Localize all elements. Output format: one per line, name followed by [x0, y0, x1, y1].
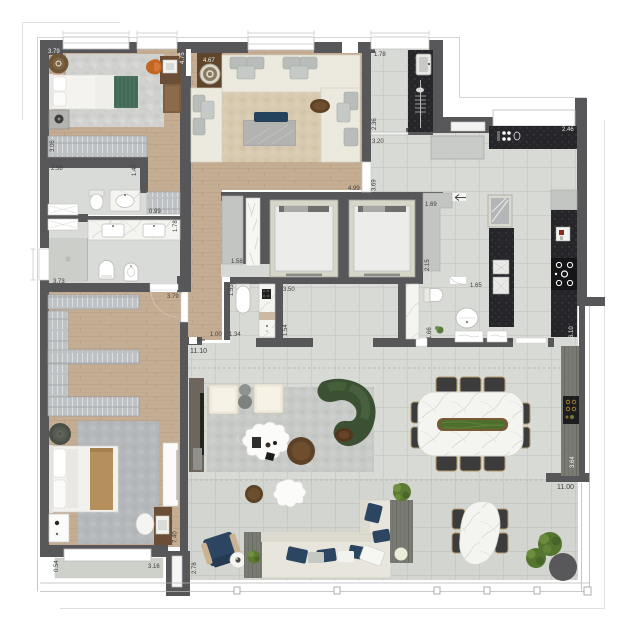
svg-text:1.54: 1.54: [283, 324, 289, 336]
svg-text:1.66: 1.66: [427, 327, 433, 339]
svg-text:3.79: 3.79: [48, 49, 60, 55]
svg-text:1.65: 1.65: [470, 283, 482, 289]
svg-text:3.73: 3.73: [53, 279, 65, 285]
svg-text:3.20: 3.20: [372, 139, 384, 145]
svg-text:3.64: 3.64: [570, 456, 576, 468]
svg-text:0.99: 0.99: [149, 209, 161, 215]
svg-text:11.00: 11.00: [557, 484, 574, 491]
svg-text:1.58: 1.58: [231, 259, 243, 265]
svg-text:3.69: 3.69: [372, 179, 378, 191]
svg-text:3.16: 3.16: [148, 564, 160, 570]
svg-text:0.54: 0.54: [54, 560, 60, 572]
svg-text:2.15: 2.15: [425, 259, 431, 271]
svg-text:1.34: 1.34: [229, 332, 241, 338]
svg-text:4.99: 4.99: [348, 186, 360, 192]
svg-text:3.50: 3.50: [283, 287, 295, 293]
svg-text:11.10: 11.10: [190, 348, 207, 355]
svg-text:3.79: 3.79: [167, 294, 179, 300]
svg-text:1.47: 1.47: [132, 164, 138, 176]
svg-text:4.67: 4.67: [203, 58, 215, 64]
svg-text:1.78: 1.78: [374, 52, 386, 58]
svg-text:6.10: 6.10: [569, 326, 575, 338]
svg-text:4.75: 4.75: [180, 52, 186, 64]
svg-text:2.46: 2.46: [562, 127, 574, 133]
svg-text:1.53: 1.53: [229, 284, 235, 296]
svg-text:2.58: 2.58: [51, 166, 63, 172]
svg-text:3.06: 3.06: [50, 140, 56, 152]
svg-text:1.00: 1.00: [210, 332, 222, 338]
svg-text:1.78: 1.78: [173, 220, 179, 232]
svg-text:7.40: 7.40: [173, 531, 179, 543]
svg-text:2.78: 2.78: [192, 562, 198, 574]
svg-text:1.69: 1.69: [425, 202, 437, 208]
svg-text:2.36: 2.36: [372, 118, 378, 130]
